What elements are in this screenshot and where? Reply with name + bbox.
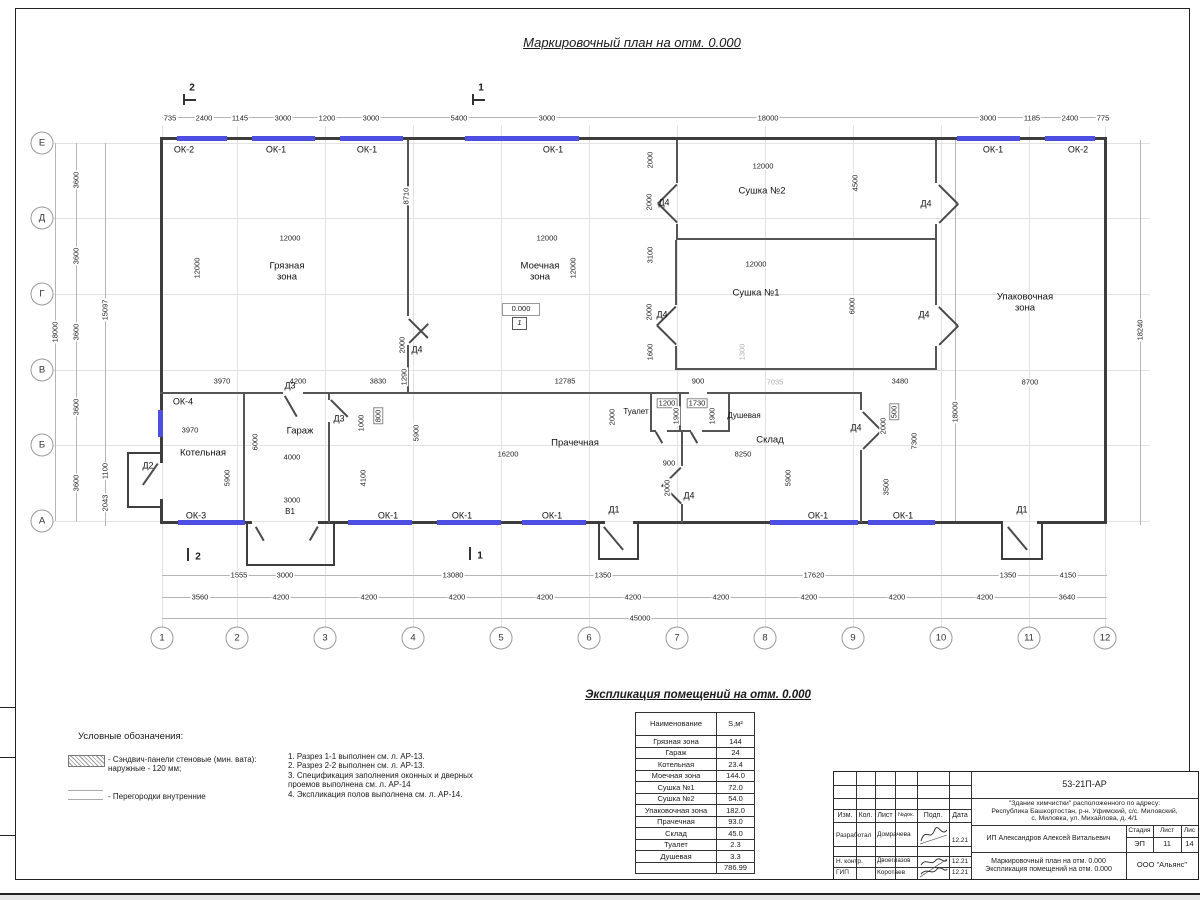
dimension-label: 1290: [400, 368, 408, 387]
dimension-label: 4200: [360, 593, 379, 601]
dimension-label: 3600: [72, 474, 80, 493]
dimension-label: 3000: [979, 114, 998, 122]
room-label: Грязная зона: [270, 261, 305, 284]
section-mark: 2: [189, 83, 195, 94]
tb-header-list: Лист: [875, 809, 895, 822]
axis-bubble-col: 11: [1018, 627, 1041, 650]
dimension-label: 1350: [594, 571, 613, 579]
dimension-label: 5900: [412, 424, 420, 443]
wall: [1104, 137, 1107, 524]
door-tag: Д1: [608, 506, 619, 515]
room-name-cell: Упаковочная зона: [636, 805, 717, 817]
door-tag: Д4: [411, 346, 422, 355]
dimension-label: 3000: [274, 114, 293, 122]
partition-wall: [935, 240, 937, 305]
dimension-label: 18000: [51, 321, 59, 344]
partition-wall: [675, 368, 937, 370]
partition-wall: [681, 504, 683, 523]
door-leaf: [1007, 526, 1027, 550]
door-tag: Д1: [1016, 506, 1027, 515]
dimension-label: 3600: [72, 247, 80, 266]
axis-bubble-col: 9: [842, 627, 865, 650]
wall: [1001, 524, 1003, 560]
axis-bubble-col: 5: [490, 627, 513, 650]
dimension-label: 1185: [1023, 114, 1041, 122]
wall: [127, 506, 162, 508]
room-area-cell: 24: [717, 747, 755, 759]
axis-grid-line: [237, 126, 238, 646]
tb-header-izm: Изм.: [834, 809, 856, 822]
dimension-label: 4200: [624, 593, 643, 601]
window-tag: ОК-1: [983, 146, 1003, 155]
dimension-label: 12000: [536, 234, 559, 242]
wall: [598, 558, 639, 560]
section-mark: 1: [478, 83, 484, 94]
room-name-cell: Котельная: [636, 759, 717, 771]
legend-item-1-line2: наружные - 120 мм;: [108, 764, 181, 773]
window-glazing: [158, 410, 163, 437]
door-tag: Д2: [142, 462, 153, 471]
dimension-label: 3970: [181, 426, 200, 434]
axis-grid-line: [325, 126, 326, 646]
dimension-label: 3100: [646, 246, 654, 265]
table-row: Склад45.0: [636, 828, 755, 840]
dimension-label: 4500: [851, 174, 859, 193]
axis-bubble-row: Г: [31, 283, 54, 306]
dimension-label: 3480: [891, 377, 910, 385]
tb-header-podp: Подп.: [917, 809, 949, 822]
signature-developed: [918, 823, 949, 846]
dimension-label: 1600: [646, 343, 654, 362]
tb-header-kol: Кол.: [856, 809, 875, 822]
tb-sheets-label: Лис: [1181, 825, 1198, 837]
tb-name-gip: Коротаев: [875, 867, 919, 879]
window-tag: ОК-4: [173, 398, 193, 407]
room-label: В1: [285, 507, 295, 517]
tb-role-ncontrol: Н. контр.: [834, 856, 877, 867]
legend-item-1: - Сэндвич-панели стеновые (мин. вата): н…: [108, 755, 257, 773]
dimension-label: 17620: [803, 571, 826, 579]
note-line: проемов выполнена см. л. АР-14: [288, 780, 473, 789]
tb-address-line1: "Здание химчистки" расположенного по адр…: [1009, 800, 1160, 807]
dimension-label: 4200: [800, 593, 819, 601]
room-label: Сушка №1: [733, 287, 780, 298]
room-label: Сушка №2: [739, 185, 786, 196]
dimension-label: 2000: [645, 303, 653, 322]
table-row: Гараж24: [636, 747, 755, 759]
door-leaf: [655, 431, 663, 443]
room-label: Душевая: [727, 411, 760, 421]
section-mark-tick: [469, 547, 471, 560]
window-tag: ОК-3: [186, 512, 206, 521]
axis-grid-line: [941, 126, 942, 646]
table-title: Экспликация помещений на отм. 0.000: [585, 689, 811, 701]
legend-swatch-sandwich-panel: [68, 755, 105, 767]
wall: [1037, 521, 1107, 524]
dimension-label: 4200: [976, 593, 995, 601]
legend-swatch-partition: [68, 790, 103, 800]
dimension-label: 3600: [72, 171, 80, 190]
tb-date-developed: 12.21: [949, 835, 971, 846]
dimension-label: 775: [1096, 114, 1111, 122]
table-row: Сушка №172.0: [636, 782, 755, 794]
axis-bubble-row: Д: [31, 207, 54, 230]
col-header-name: Наименование: [636, 713, 717, 736]
notes-list: 1. Разрез 1-1 выполнен см. л. АР-13.2. Р…: [288, 752, 473, 799]
axis-bubble-col: 10: [930, 627, 953, 650]
axis-bubble-row: Е: [31, 132, 54, 155]
tb-stage-label: Стадия: [1126, 825, 1153, 837]
partition-wall: [860, 450, 862, 523]
table-row: Прачечная93.0: [636, 816, 755, 828]
room-label: Котельная: [180, 447, 226, 458]
drawing-sheet: { "title": "Маркировочный план на отм. 0…: [0, 0, 1200, 900]
note-line: 2. Разрез 2-2 выполнен см. л. АР-13.: [288, 761, 473, 770]
tb-sheet-label: Лист: [1153, 825, 1181, 837]
dimension-label: 4150: [1059, 571, 1078, 579]
dimension-label: 3970: [213, 377, 232, 385]
dimension-label: 8250: [734, 450, 753, 458]
dimension-label: 3600: [72, 398, 80, 417]
table-row: 786.99: [636, 862, 755, 874]
room-area-cell: 23.4: [717, 759, 755, 771]
window-tag: ОК-1: [893, 512, 913, 521]
room-area-cell: 144.0: [717, 770, 755, 782]
dimension-label: 2400: [195, 114, 214, 122]
room-label: Туалет: [623, 407, 648, 417]
tb-name-ncontrol: Двоеглазов: [875, 856, 919, 867]
title-block: Изм. Кол. Лист №док. Подп. Дата Разработ…: [833, 771, 1199, 880]
door-tag: Д4: [850, 424, 861, 433]
dimension-label: 900: [662, 459, 677, 467]
tb-doc-title: Маркировочный план на отм. 0.000 Эксплик…: [971, 852, 1126, 879]
dimension-label: 2043: [101, 494, 109, 513]
dimension-label: 1145: [231, 114, 249, 122]
wall: [127, 452, 129, 508]
door-tag: Д4: [683, 492, 694, 501]
dimension-label: 4200: [712, 593, 731, 601]
axis-grid-line: [853, 126, 854, 646]
room-label: Гараж: [287, 425, 314, 436]
axis-bubble-col: 1: [151, 627, 174, 650]
wall: [1001, 558, 1043, 560]
window-tag: ОК-1: [542, 512, 562, 521]
window-glazing: [437, 520, 501, 525]
dimension-label: 3830: [369, 377, 388, 385]
room-area-cell: 93.0: [717, 816, 755, 828]
door-leaf: [603, 526, 623, 550]
room-name-cell: Прачечная: [636, 816, 717, 828]
dimension-label: 3000: [538, 114, 557, 122]
room-area-cell: 72.0: [717, 782, 755, 794]
dimension-label: 18000: [951, 401, 959, 424]
window-tag: ОК-1: [266, 146, 286, 155]
axis-bubble-col: 7: [666, 627, 689, 650]
dimension-label: 900: [691, 377, 706, 385]
wall: [246, 524, 248, 566]
door-tag: Д3: [284, 382, 295, 391]
window-glazing: [340, 136, 403, 141]
dimension-label: 12000: [569, 257, 577, 280]
window-glazing: [868, 520, 935, 525]
dimension-label: 12000: [745, 260, 768, 268]
table-row: Душевая3.3: [636, 851, 755, 863]
dimension-label: 1730: [687, 398, 708, 408]
wall: [160, 499, 163, 524]
tb-address: "Здание химчистки" расположенного по адр…: [971, 798, 1198, 825]
room-area-cell: 182.0: [717, 805, 755, 817]
tb-date-ncontrol: 12.21: [949, 856, 971, 867]
dimension-label: 6000: [251, 433, 259, 452]
legend-item-2: - Перегородки внутренние: [108, 792, 206, 801]
dimension-label: 1300: [738, 343, 746, 362]
tb-name-developed: Домрачева: [875, 828, 919, 841]
dimension-label: 3000: [283, 496, 302, 504]
col-header-area: S,м²: [717, 713, 755, 736]
section-mark-tick: [472, 99, 485, 101]
dimension-label: 800: [373, 408, 383, 425]
partition-wall: [935, 140, 937, 183]
dimension-label: 5900: [223, 469, 231, 488]
tb-header-ndok: №док.: [895, 809, 917, 822]
door-tag: Д4: [658, 199, 669, 208]
dimension-label: 18240: [1136, 319, 1144, 342]
window-glazing: [522, 520, 586, 525]
partition-wall: [328, 422, 330, 523]
wall: [333, 524, 335, 566]
partition-wall: [681, 432, 683, 466]
room-area-cell: 54.0: [717, 793, 755, 805]
table-row: Туалет2.3: [636, 839, 755, 851]
window-glazing: [1045, 136, 1095, 141]
axis-bubble-col: 12: [1094, 627, 1117, 650]
dimension-label: 4100: [359, 469, 367, 488]
wall: [128, 452, 162, 454]
door-leaf: [309, 526, 318, 541]
section-mark-tick: [187, 548, 189, 561]
dimension-line: [162, 117, 1111, 118]
partition-wall: [676, 238, 937, 240]
room-name-cell: Сушка №2: [636, 793, 717, 805]
door-tag: Д3: [333, 415, 344, 424]
partition-wall: [676, 140, 678, 183]
dimension-label: 735: [163, 114, 178, 122]
dimension-label: 3000: [362, 114, 381, 122]
dimension-label: 3560: [191, 593, 210, 601]
dimension-line: [955, 140, 956, 521]
dimension-label: 4200: [272, 593, 291, 601]
partition-wall: [303, 392, 689, 394]
axis-grid-line: [48, 445, 1150, 446]
axis-bubble-col: 3: [314, 627, 337, 650]
dimension-label: 16200: [497, 450, 520, 458]
room-name-cell: Грязная зона: [636, 736, 717, 748]
window-glazing: [252, 136, 315, 141]
window-glazing: [770, 520, 858, 525]
partition-wall: [675, 346, 677, 370]
room-area-cell: 786.99: [717, 862, 755, 874]
dimension-line: [162, 575, 1107, 576]
dimension-label: 2000: [398, 336, 406, 355]
table-row: Котельная23.4: [636, 759, 755, 771]
partition-wall: [702, 430, 730, 432]
door-tag: Д4: [656, 311, 667, 320]
note-line: 3. Спецификация заполнения оконных и две…: [288, 771, 473, 780]
dimension-label: 3600: [72, 323, 80, 342]
dimension-label: 2000: [646, 151, 654, 170]
tb-sheet-value: 11: [1153, 837, 1181, 852]
dimension-label: 13080: [442, 571, 465, 579]
section-mark: 1: [477, 551, 483, 562]
room-area-cell: 45.0: [717, 828, 755, 840]
room-label: Прачечная: [551, 437, 599, 448]
window-glazing: [178, 520, 245, 525]
window-tag: ОК-2: [1068, 146, 1088, 155]
note-line: 4. Экспликация полов выполнена см. л. АР…: [288, 790, 473, 799]
window-glazing: [348, 520, 412, 525]
axis-grid-line: [48, 294, 1150, 295]
tb-header-data: Дата: [949, 809, 971, 822]
dimension-label: 2000: [879, 417, 887, 436]
tb-doc-title-line2: Экспликация помещений на отм. 0.000: [985, 866, 1112, 874]
dimension-label: 45000: [629, 614, 652, 622]
partition-wall: [860, 394, 862, 410]
legend-title: Условные обозначения:: [78, 731, 183, 742]
axis-grid-line: [677, 126, 678, 646]
dimension-label: 1200: [318, 114, 337, 122]
door-leaf: [690, 431, 698, 443]
door-leaf: [255, 526, 264, 541]
axis-bubble-col: 2: [226, 627, 249, 650]
dimension-label: 500: [889, 404, 899, 421]
door-tag: Д4: [918, 311, 929, 320]
window-glazing: [957, 136, 1020, 141]
axis-bubble-col: 8: [754, 627, 777, 650]
window-tag: ОК-1: [357, 146, 377, 155]
wall: [1041, 524, 1043, 560]
note-line: 1. Разрез 1-1 выполнен см. л. АР-13.: [288, 752, 473, 761]
dimension-label: 2000: [663, 479, 671, 498]
tb-client: ИП Александров Алексей Витальевич: [971, 825, 1126, 852]
section-mark: 2: [195, 552, 201, 563]
dimension-label: 7300: [910, 432, 918, 451]
dimension-label: 15097: [101, 299, 109, 322]
dimension-label: 12785: [554, 377, 577, 385]
axis-bubble-row: А: [31, 510, 54, 533]
room-name-cell: Сушка №1: [636, 782, 717, 794]
axis-bubble-row: Б: [31, 434, 54, 457]
axis-bubble-col: 6: [578, 627, 601, 650]
signature-ncontrol-gip: [918, 857, 949, 878]
axis-bubble-row: В: [31, 359, 54, 382]
tb-role-developed: Разработал: [834, 829, 877, 842]
table-row: Упаковочная зона182.0: [636, 805, 755, 817]
room-area-cell: 2.3: [717, 839, 755, 851]
window-tag: ОК-1: [452, 512, 472, 521]
axis-grid-line: [589, 126, 590, 646]
room-label: Упаковочная зона: [997, 292, 1053, 315]
table-row: Сушка №254.0: [636, 793, 755, 805]
dimension-label: 12000: [752, 162, 775, 170]
dimension-label: 6000: [848, 297, 856, 316]
room-name-cell: Склад: [636, 828, 717, 840]
tb-stage-value: ЭП: [1126, 837, 1153, 852]
dimension-label: 3000: [276, 571, 295, 579]
window-tag: ОК-2: [174, 146, 194, 155]
dimension-label: 5400: [450, 114, 469, 122]
dimension-label: 5900: [784, 469, 792, 488]
dimension-label: 2400: [1061, 114, 1080, 122]
tb-address-line3: с. Миловка, ул. Михайлова, д. 4/1: [1031, 815, 1137, 822]
floor-type-mark: 1: [512, 317, 527, 330]
dimension-label: 3640: [1058, 593, 1077, 601]
tb-doc-title-line1: Маркировочный план на отм. 0.000: [991, 858, 1106, 866]
dimension-label: 18000: [757, 114, 780, 122]
dimension-label: 8700: [1021, 378, 1040, 386]
tb-project-code: 53-21П-АР: [971, 772, 1198, 798]
tb-sheets-value: 14: [1181, 837, 1198, 852]
dimension-label: 7035: [766, 378, 785, 386]
room-area-cell: 144: [717, 736, 755, 748]
partition-wall: [160, 392, 283, 394]
table-row: Грязная зона144: [636, 736, 755, 748]
room-name-cell: Душевая: [636, 851, 717, 863]
partition-wall: [243, 394, 245, 523]
room-label: Склад: [756, 434, 784, 445]
axis-grid-line: [48, 370, 1150, 371]
window-glazing: [177, 136, 227, 141]
room-label: Моечная зона: [521, 261, 560, 284]
door-tag: Д4: [920, 200, 931, 209]
dimension-label: 4200: [536, 593, 555, 601]
dimension-label: 1900: [708, 407, 716, 426]
door-leaf: [408, 318, 428, 338]
room-name-cell: [636, 862, 717, 874]
room-area-cell: 3.3: [717, 851, 755, 863]
dimension-label: 12000: [279, 234, 302, 242]
room-name-cell: Гараж: [636, 747, 717, 759]
dimension-label: 4200: [448, 593, 467, 601]
tb-role-gip: ГИП: [834, 867, 877, 879]
dimension-label: 8710: [402, 187, 410, 206]
door-leaf: [408, 323, 428, 343]
wall: [246, 564, 335, 566]
elevation-mark: 0.000: [502, 303, 540, 316]
dimension-label: 1350: [999, 571, 1018, 579]
legend-item-1-line1: - Сэндвич-панели стеновые (мин. вата):: [108, 755, 257, 764]
window-tag: ОК-1: [378, 512, 398, 521]
door-leaf: [284, 395, 297, 417]
partition-wall: [650, 394, 652, 432]
door-leaf: [656, 325, 676, 345]
dimension-label: 1100: [101, 462, 109, 480]
wall: [637, 524, 639, 560]
dimension-label: 1555: [230, 571, 249, 579]
section-mark-tick: [183, 99, 196, 101]
room-name-cell: Туалет: [636, 839, 717, 851]
room-schedule-table: Наименование S,м² Грязная зона144Гараж24…: [635, 712, 755, 874]
window-tag: ОК-1: [808, 512, 828, 521]
axis-bubble-col: 4: [402, 627, 425, 650]
dimension-label: 1900: [672, 407, 680, 426]
dimension-label: 1000: [357, 414, 365, 433]
dimension-label: 4200: [888, 593, 907, 601]
partition-wall: [707, 392, 862, 394]
axis-grid-line: [413, 126, 414, 646]
room-name-cell: Моечная зона: [636, 770, 717, 782]
partition-wall: [675, 240, 677, 305]
axis-grid-line: [48, 218, 1150, 219]
